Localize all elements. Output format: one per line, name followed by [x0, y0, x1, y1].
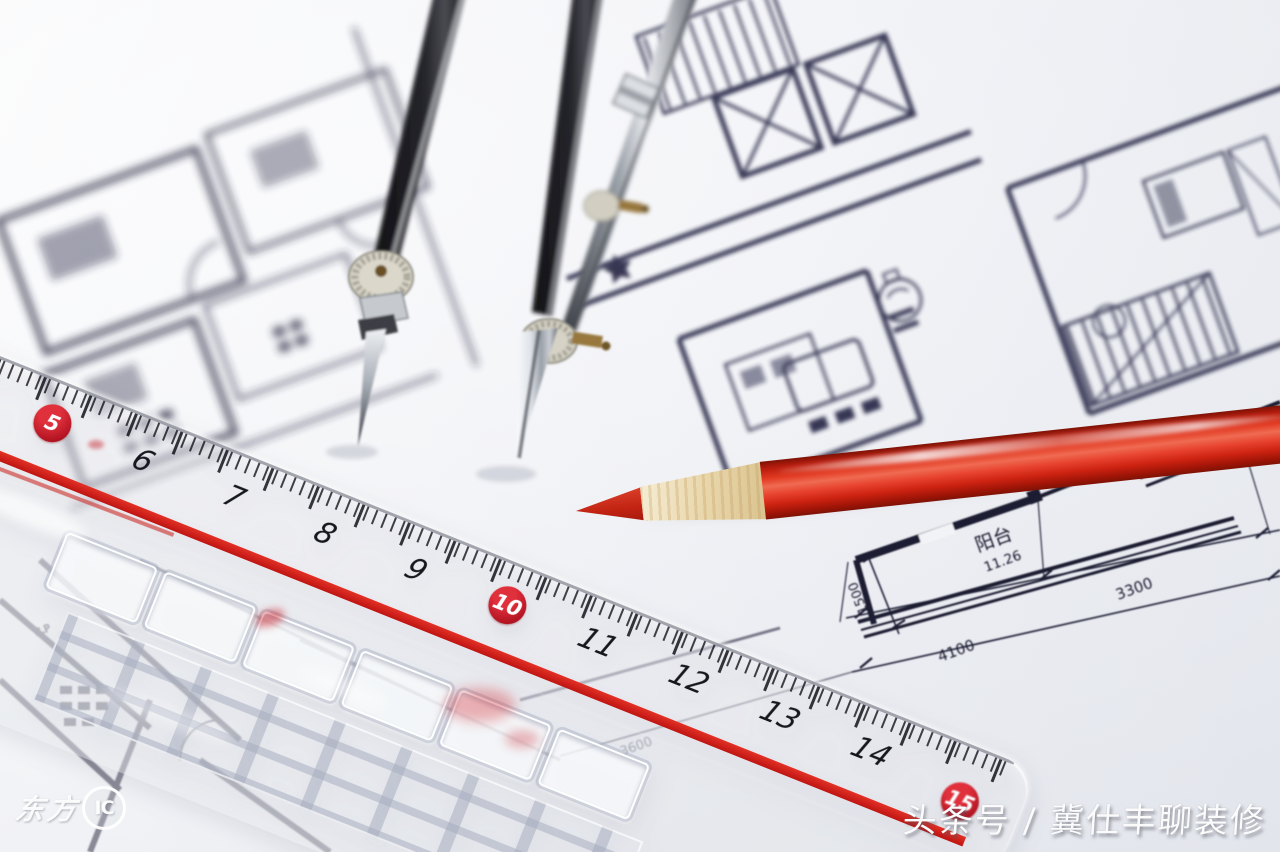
stair-hatch-block	[1063, 273, 1238, 405]
compass-legs	[374, 0, 702, 332]
furniture-block	[740, 365, 767, 389]
fixture-ring	[873, 273, 927, 327]
screw-tip	[602, 342, 611, 351]
pencil-lead-tip	[573, 475, 649, 540]
compass-left-leg	[374, 0, 468, 262]
dim-ticks	[860, 570, 1280, 668]
table-symbol	[1089, 301, 1130, 342]
furniture-block	[37, 215, 118, 281]
dining-cluster	[782, 338, 880, 429]
brass-screw	[617, 199, 642, 213]
fixture-cap	[883, 269, 900, 283]
dim-text-4100: 4100	[935, 636, 977, 666]
red-paint-smudge	[445, 688, 515, 722]
watermark-dongfang-ic: 东方 IC	[16, 786, 126, 830]
watermark-script-text: 东方	[12, 788, 83, 828]
table	[782, 338, 874, 412]
elevator-x	[806, 35, 914, 143]
dim-text-3300: 3300	[1113, 574, 1155, 604]
fixture-arc	[886, 286, 908, 298]
right-unit-rooms	[1007, 85, 1280, 413]
red-paint-smudge	[88, 440, 104, 449]
needle-point	[358, 329, 386, 446]
compass-hinges-and-points	[349, 251, 611, 464]
room-outline	[0, 149, 244, 352]
blueprint-mid-blurred	[497, 0, 1280, 489]
bed-symbol	[725, 334, 834, 431]
furniture-block	[250, 130, 320, 188]
watermark-toutiao-credit: 头条号 / 冀仕丰聊装修	[901, 793, 1268, 842]
door-arc	[1040, 161, 1098, 219]
ic-badge: IC	[82, 786, 126, 830]
unit-walls	[1007, 85, 1280, 413]
stencil-cutout-large	[45, 532, 158, 624]
railing-line	[858, 518, 1234, 622]
needle-shadow	[326, 445, 378, 459]
knurled-knob-small	[584, 191, 620, 221]
door-gap	[920, 528, 954, 540]
fixture-circle-symbol	[870, 265, 927, 327]
point-shadow	[476, 466, 536, 482]
photo-canvas: 阳台 11.26 3300 4100 1500 3600 B.P	[0, 0, 1280, 852]
hinge-pin	[375, 265, 387, 277]
red-paint-smudge	[505, 730, 539, 748]
screw-tip	[641, 205, 649, 213]
railing-line	[864, 532, 1241, 637]
